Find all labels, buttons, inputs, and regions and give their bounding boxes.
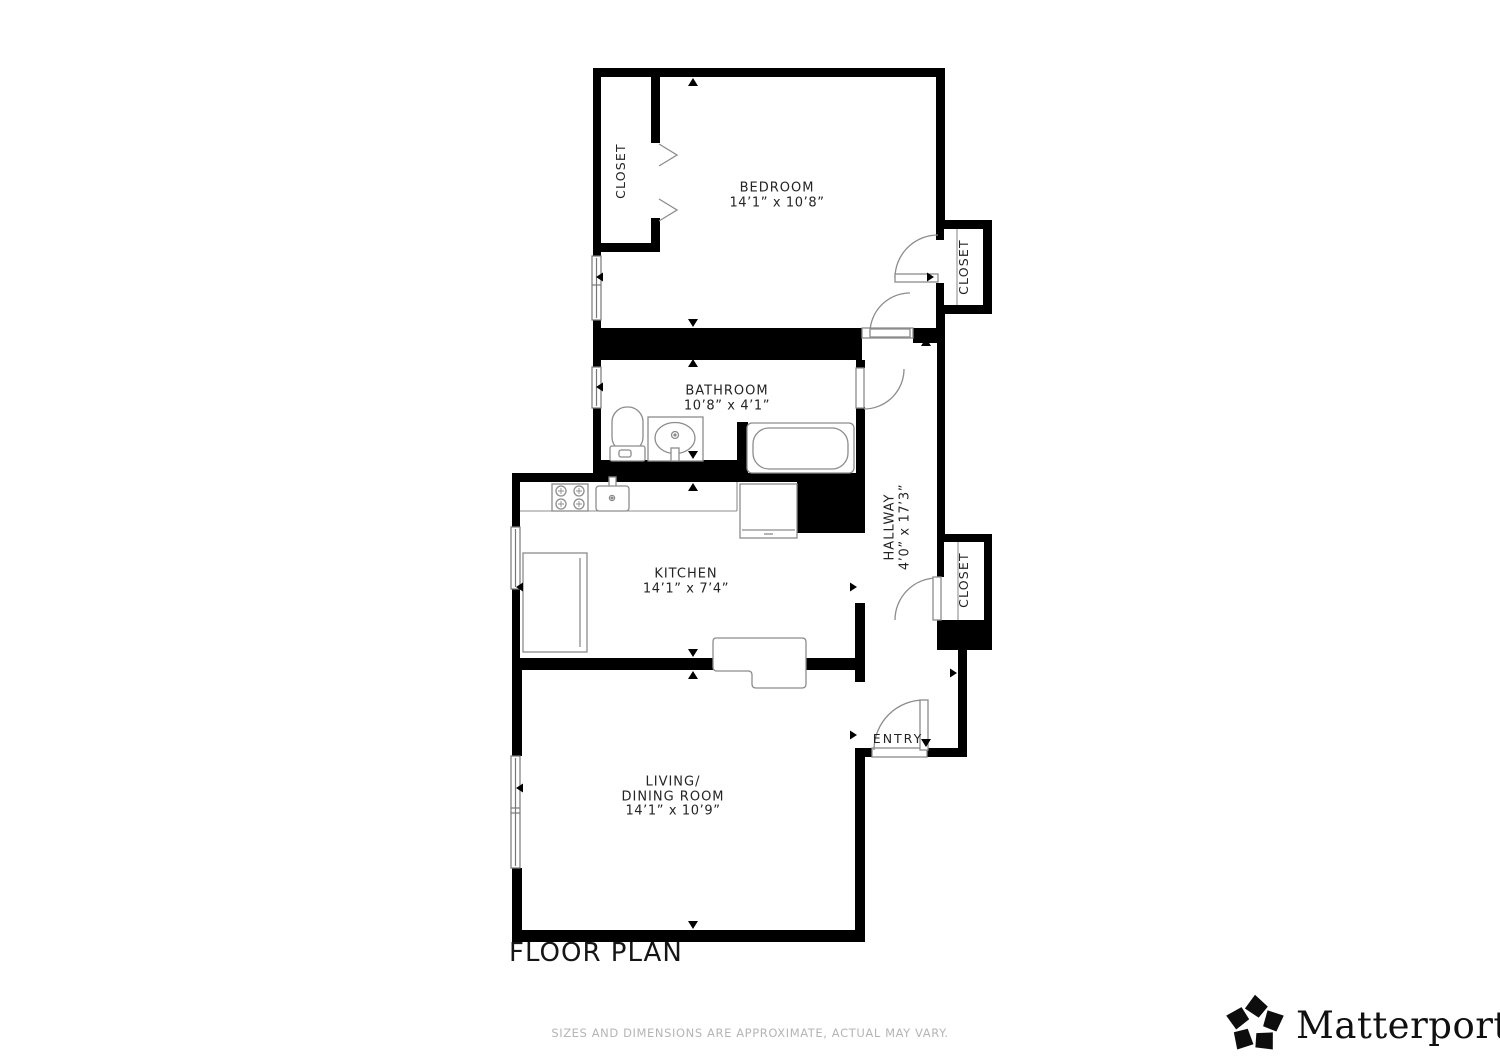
living-dining-label: LIVING/ DINING ROOM 14’1” x 10’9” bbox=[621, 775, 724, 819]
hallway-name: HALLWAY bbox=[884, 484, 899, 570]
kitchen-window bbox=[511, 527, 520, 589]
kitchen-sink-icon bbox=[596, 477, 629, 511]
page-title: FLOOR PLAN bbox=[509, 938, 683, 968]
living-name-2: DINING ROOM bbox=[621, 790, 724, 805]
closet-bedroom-left-label: CLOSET bbox=[614, 143, 629, 199]
bathtub-icon bbox=[747, 423, 854, 473]
dishwasher-icon bbox=[740, 484, 797, 538]
stove-icon bbox=[552, 484, 588, 511]
bathroom-name: BATHROOM bbox=[684, 385, 770, 400]
kitchen-name: KITCHEN bbox=[643, 568, 729, 583]
bedroom-door bbox=[862, 293, 913, 338]
entry-label: ENTRY bbox=[873, 732, 923, 747]
refrigerator-icon bbox=[523, 553, 587, 652]
kitchen-label: KITCHEN 14’1” x 7’4” bbox=[643, 568, 729, 597]
bathroom-dims: 10’8” x 4’1” bbox=[684, 399, 770, 414]
bedroom-label: BEDROOM 14’1” x 10’8” bbox=[729, 182, 824, 211]
living-dims: 14’1” x 10’9” bbox=[621, 804, 724, 819]
floor-plan-drawing bbox=[0, 0, 1500, 1060]
matterport-logo: Matterport® bbox=[1222, 992, 1500, 1058]
bedroom-window bbox=[592, 256, 601, 320]
bedroom-name: BEDROOM bbox=[729, 182, 824, 197]
living-window bbox=[511, 756, 520, 868]
living-name-1: LIVING/ bbox=[621, 775, 724, 790]
matterport-name: Matterport bbox=[1296, 1004, 1500, 1047]
hallway-label: HALLWAY 4’0” x 17’3” bbox=[884, 484, 913, 570]
bedroom-dims: 14’1” x 10’8” bbox=[729, 196, 824, 211]
entry-door bbox=[872, 700, 928, 757]
toilet-icon bbox=[610, 407, 645, 461]
floor-plan: BEDROOM 14’1” x 10’8” BATHROOM 10’8” x 4… bbox=[0, 0, 1500, 1060]
hallway-dims: 4’0” x 17’3” bbox=[898, 484, 913, 570]
closet-bedroom-right-label: CLOSET bbox=[957, 239, 972, 295]
hallway-closet-door bbox=[895, 577, 941, 620]
closet-hallway-label: CLOSET bbox=[957, 552, 972, 608]
bifold-closet-chevrons bbox=[659, 144, 677, 221]
bathroom-door bbox=[856, 368, 904, 409]
pass-through-counter bbox=[713, 638, 806, 688]
bathroom-label: BATHROOM 10’8” x 4’1” bbox=[684, 385, 770, 414]
kitchen-dims: 14’1” x 7’4” bbox=[643, 582, 729, 597]
bedroom-closet-door bbox=[895, 235, 938, 282]
matterport-wordmark: Matterport® bbox=[1296, 1004, 1500, 1047]
matterport-pinwheel-icon bbox=[1222, 992, 1288, 1058]
